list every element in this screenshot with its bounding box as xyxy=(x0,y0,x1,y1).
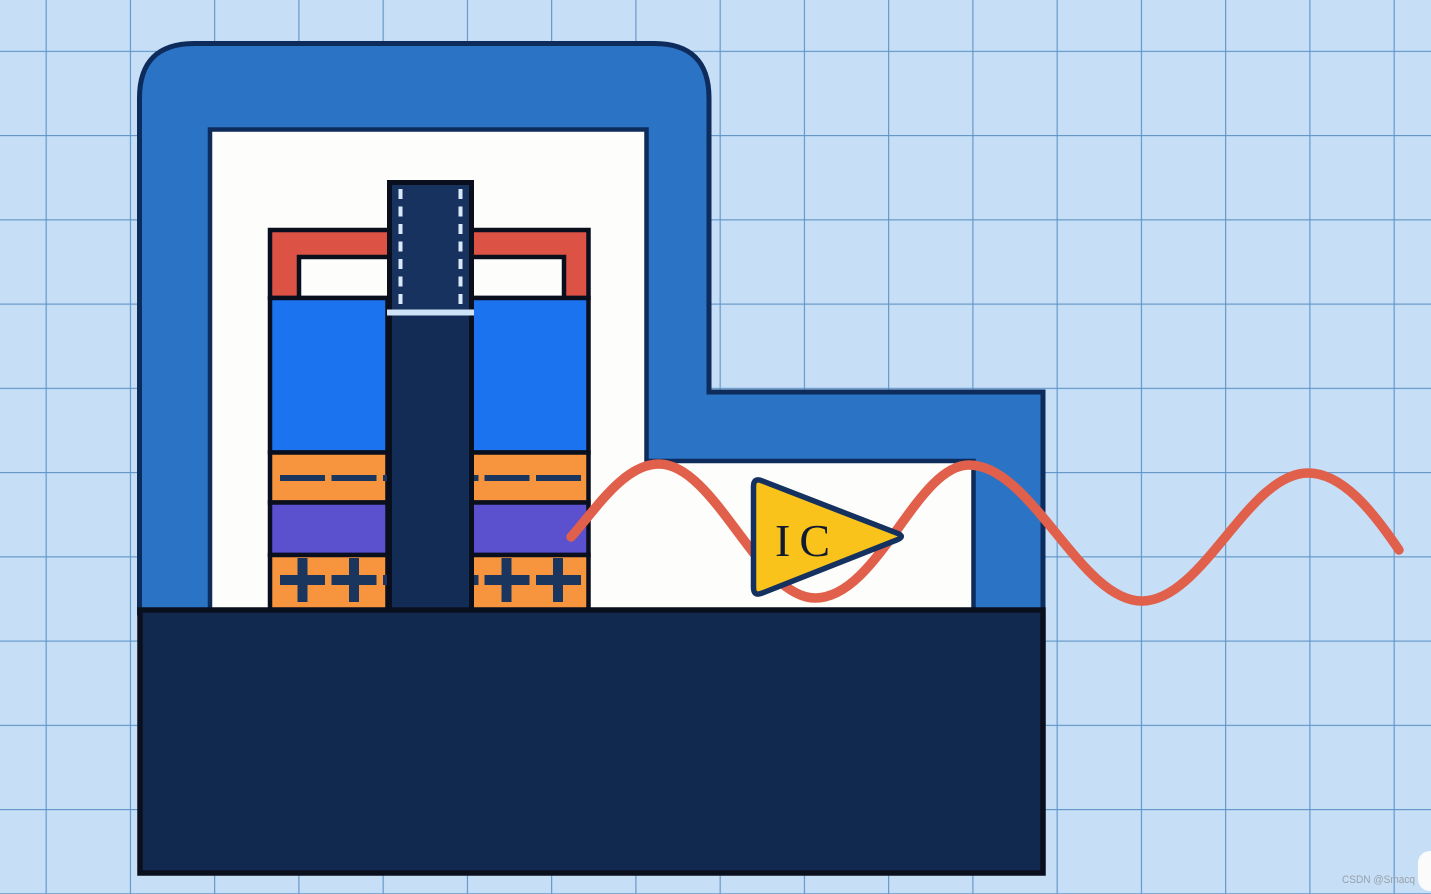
svg-text:IC: IC xyxy=(775,515,839,566)
svg-text:CSDN @Smacq: CSDN @Smacq xyxy=(1342,874,1415,886)
